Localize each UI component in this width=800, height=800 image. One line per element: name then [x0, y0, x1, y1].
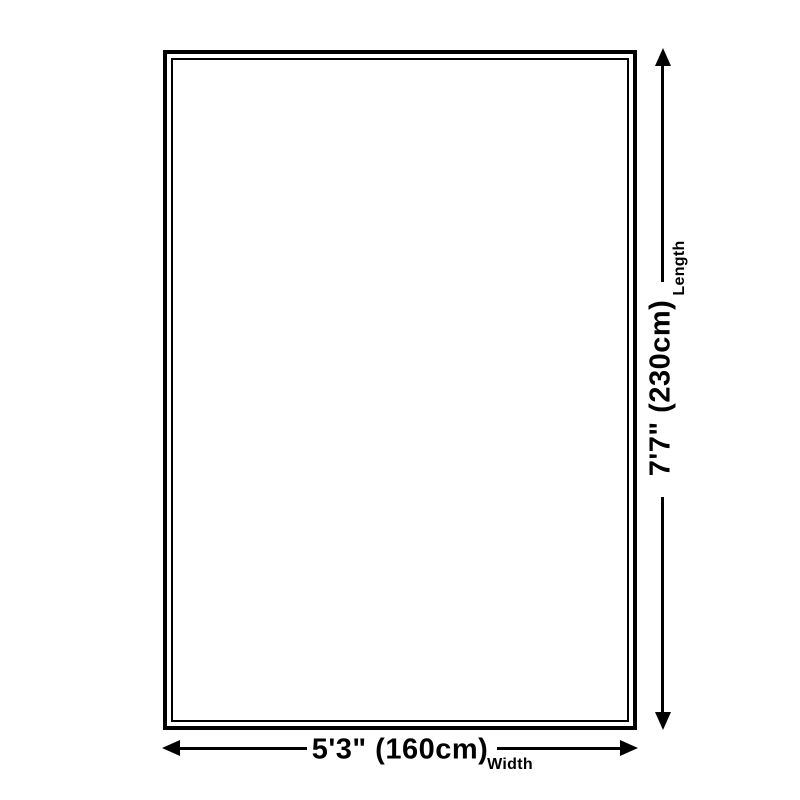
rug-size-diagram: Length 7'7" (230cm) 5'3" (160cm) Width	[0, 0, 800, 800]
width-value-label: 5'3" (160cm)	[312, 734, 489, 767]
length-arrow-line-top	[661, 62, 664, 282]
rug-inner-border	[171, 58, 629, 722]
width-arrow-line-left	[176, 747, 307, 750]
length-value-label: 7'7" (230cm)	[645, 300, 678, 477]
rug-outline	[163, 50, 637, 730]
length-axis-label: Length	[671, 240, 689, 295]
arrow-down-icon	[655, 712, 671, 730]
length-arrow-line-bottom	[661, 497, 664, 714]
width-arrow-line-right	[497, 747, 621, 750]
arrow-right-icon	[620, 740, 638, 756]
width-axis-label: Width	[487, 756, 533, 774]
